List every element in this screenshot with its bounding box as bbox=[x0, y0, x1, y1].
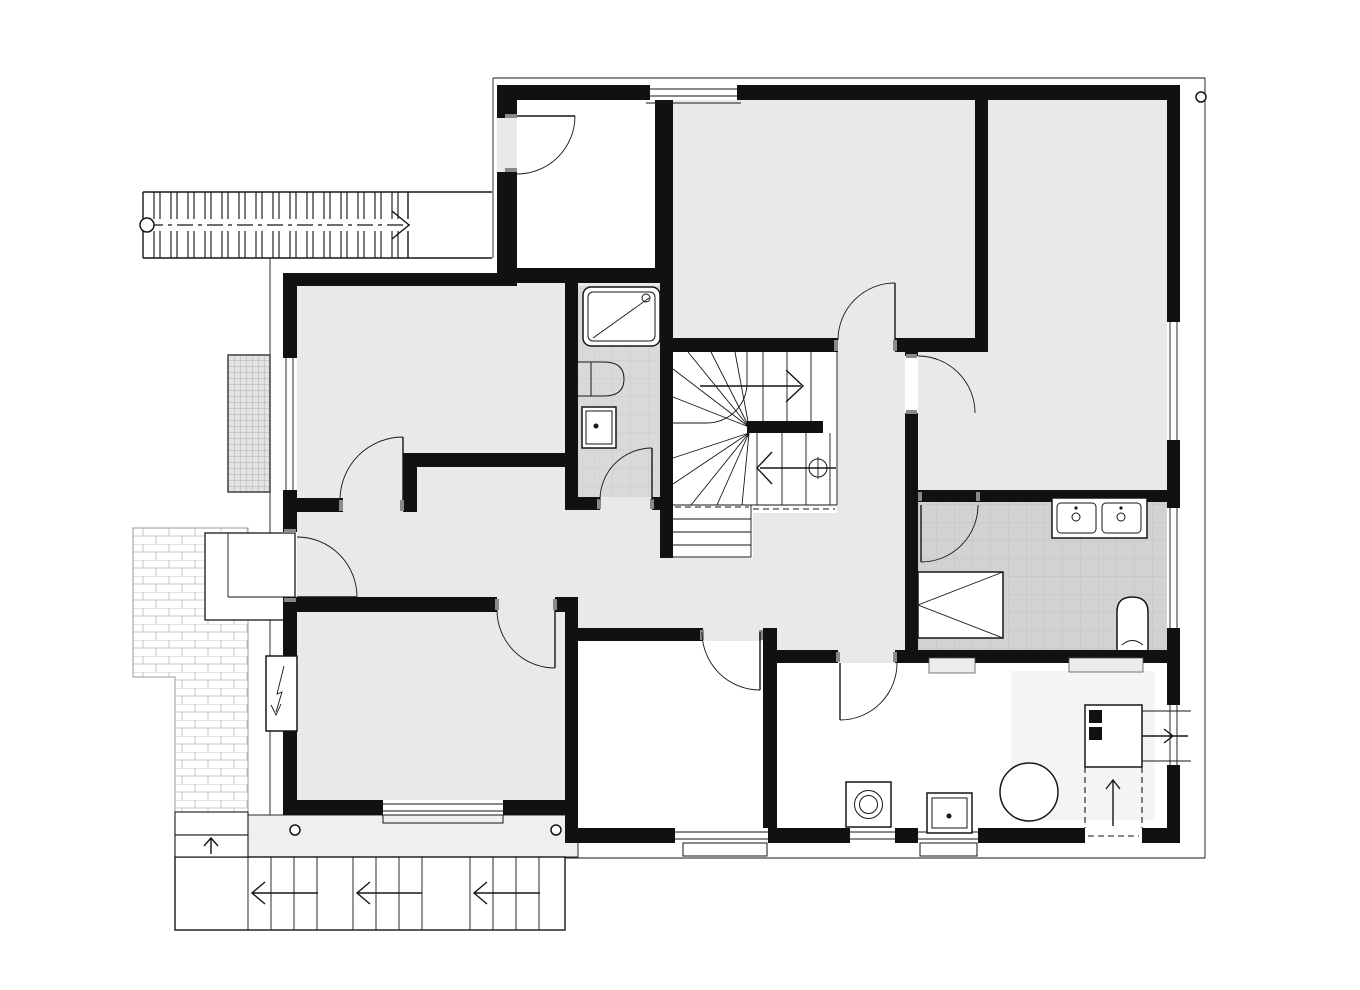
window-left bbox=[283, 358, 297, 490]
stair-treads-upper-band bbox=[150, 192, 408, 219]
window-right-upper bbox=[1167, 322, 1180, 440]
fold-down-table bbox=[918, 572, 1003, 638]
walkline-start-circle bbox=[140, 218, 154, 232]
floor-entry-room bbox=[517, 100, 655, 268]
floor-plan-page bbox=[0, 0, 1360, 990]
window-right-vent bbox=[1167, 705, 1180, 765]
wall-niche-left bbox=[929, 658, 975, 673]
washbasin bbox=[582, 407, 616, 448]
floor-bottom-middle-room bbox=[578, 641, 763, 831]
floor-top-right-lower bbox=[918, 352, 1167, 502]
boiler-tank bbox=[1000, 763, 1058, 821]
entrance-stoop bbox=[205, 533, 295, 620]
side-step-landing bbox=[175, 812, 248, 835]
window-bottom-small bbox=[850, 828, 895, 843]
downspout-circle-terrace-left bbox=[290, 825, 300, 835]
washing-machine bbox=[846, 782, 891, 827]
small-basin bbox=[1117, 597, 1148, 650]
laundry-tub bbox=[927, 793, 972, 833]
exterior-top-stair bbox=[140, 192, 492, 258]
downspout-circle-terrace-right bbox=[551, 825, 561, 835]
shower-tray bbox=[583, 287, 660, 346]
stair-treads-lower-band bbox=[150, 231, 408, 258]
wall-niche-right bbox=[1069, 658, 1143, 672]
light-well bbox=[228, 355, 270, 492]
floor-plan-drawing bbox=[0, 0, 1360, 990]
double-sink bbox=[1052, 498, 1147, 538]
floor-stair-flight bbox=[673, 505, 753, 558]
window-bottom-middle-room bbox=[675, 828, 768, 856]
window-right-middle bbox=[1167, 508, 1180, 628]
downspout-circle-top-right bbox=[1196, 92, 1206, 102]
electric-meter-box bbox=[266, 656, 297, 731]
